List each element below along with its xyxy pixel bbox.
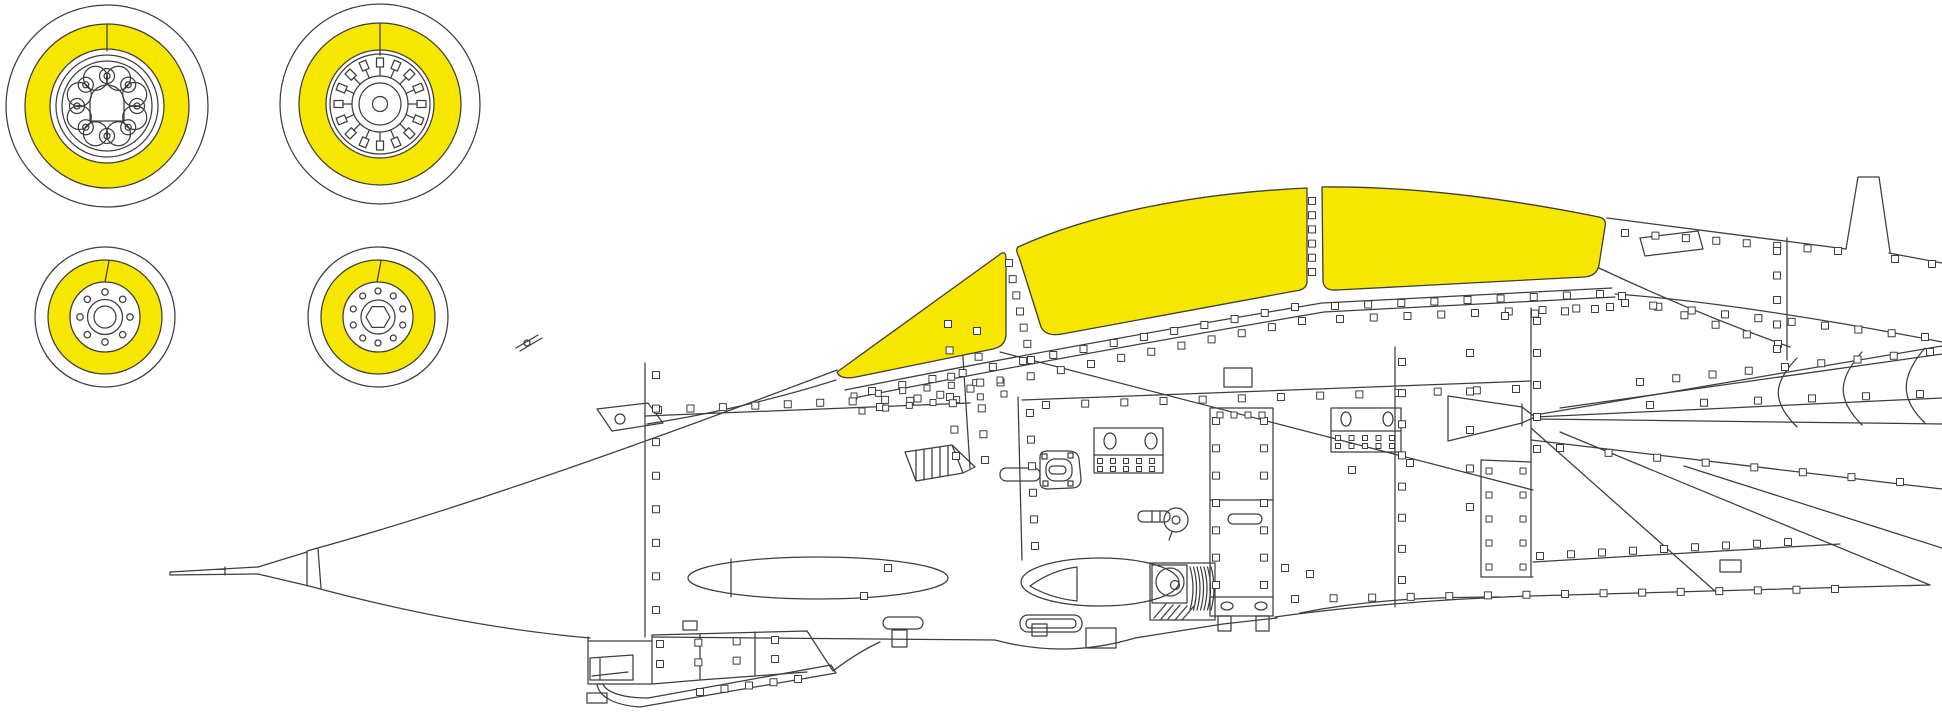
- wheel-mask-main-a: [6, 5, 208, 207]
- fuel-probe-detail: [1138, 508, 1188, 540]
- gun-gas-vent-drum: [1150, 563, 1215, 620]
- wheel-mask-main-b: [280, 4, 480, 204]
- nose-chine-line: [647, 380, 836, 424]
- lower-fuselage-line: [652, 618, 1277, 649]
- upper-nose-contour: [307, 370, 837, 551]
- lower-nose-contour: [309, 586, 590, 638]
- louver-vent: [905, 445, 975, 481]
- nose-vane: [516, 335, 542, 351]
- mask-diagram: [0, 0, 1942, 712]
- diagram-linework: [6, 4, 1942, 707]
- spine-antenna-fin: [1846, 177, 1890, 252]
- intake-front-panel-line: [1018, 397, 1022, 560]
- belly-fittings: [683, 615, 1116, 648]
- wheel-mask-nose-b: [308, 247, 448, 387]
- gun-muzzle-fairing: [1000, 451, 1081, 489]
- spine-access-panel: [1640, 231, 1703, 256]
- ventral-trough: [688, 557, 948, 599]
- canopy-rear-mask: [1322, 187, 1605, 290]
- pitot-tube: [170, 549, 321, 588]
- mask-instruction-sheet: [0, 0, 1942, 712]
- wheel-mask-nose-a: [35, 247, 175, 387]
